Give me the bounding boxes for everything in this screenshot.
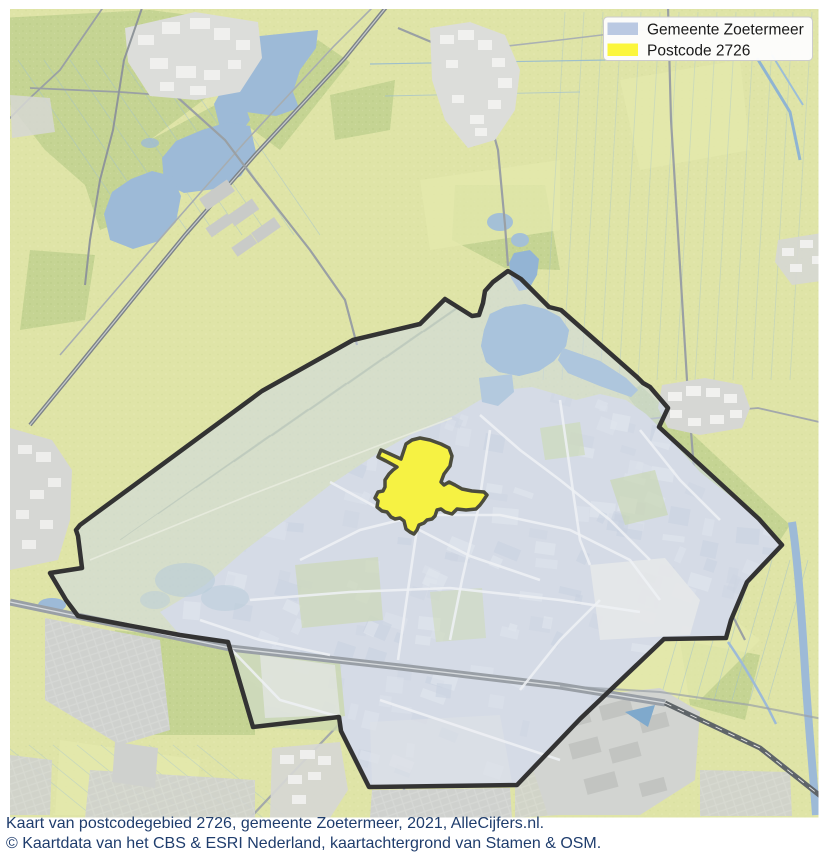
svg-text:Postcode 2726: Postcode 2726 (647, 43, 750, 60)
svg-text:Gemeente Zoetermeer: Gemeente Zoetermeer (647, 22, 804, 39)
